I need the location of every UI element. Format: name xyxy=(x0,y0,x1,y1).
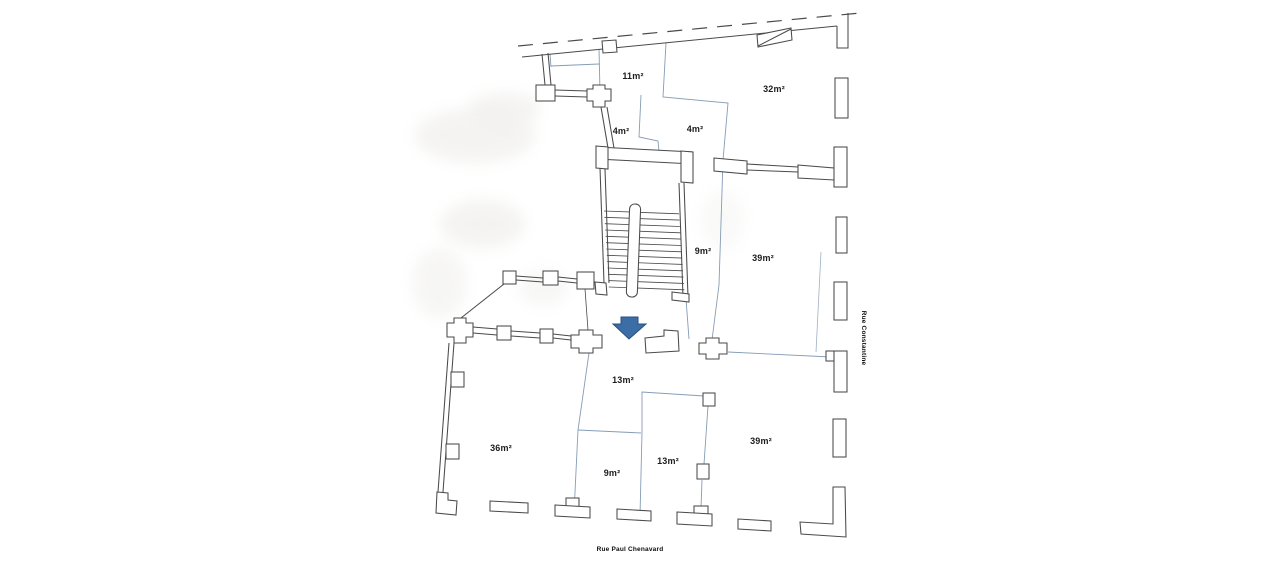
site-boundary xyxy=(518,13,860,57)
entrance-arrow-icon xyxy=(613,317,646,339)
room-area-label: 9m² xyxy=(695,246,712,256)
room-area-label: 9m² xyxy=(604,468,621,478)
column xyxy=(699,338,727,359)
column xyxy=(587,85,611,107)
room-area-label: 39m² xyxy=(752,253,774,263)
room-area-label: 32m² xyxy=(763,84,785,94)
corner-wall xyxy=(800,487,846,537)
street-name-label: Rue Constantine xyxy=(860,311,867,366)
scanned-floor-plan: 11m² 32m² 4m² 4m² 9m² 39m² 13m² 36m² 9m²… xyxy=(0,0,1280,575)
staircase xyxy=(595,146,693,302)
room-area-label: 4m² xyxy=(687,124,704,134)
corner-wall xyxy=(837,13,848,48)
street-name-label: Rue Paul Chenavard xyxy=(597,546,664,553)
room-area-label: 4m² xyxy=(613,126,630,136)
room-area-label: 13m² xyxy=(612,375,634,385)
room-area-label: 13m² xyxy=(657,456,679,466)
street-piers xyxy=(490,78,848,537)
stair-steps xyxy=(604,211,684,290)
column xyxy=(447,318,473,343)
column xyxy=(571,330,602,353)
floor-plan-drawing: 11m² 32m² 4m² 4m² 9m² 39m² 13m² 36m² 9m²… xyxy=(0,0,1280,575)
room-area-label: 11m² xyxy=(622,71,643,81)
room-area-label: 39m² xyxy=(750,436,772,446)
wall-notch xyxy=(602,40,617,53)
room-area-label: 36m² xyxy=(490,443,512,453)
